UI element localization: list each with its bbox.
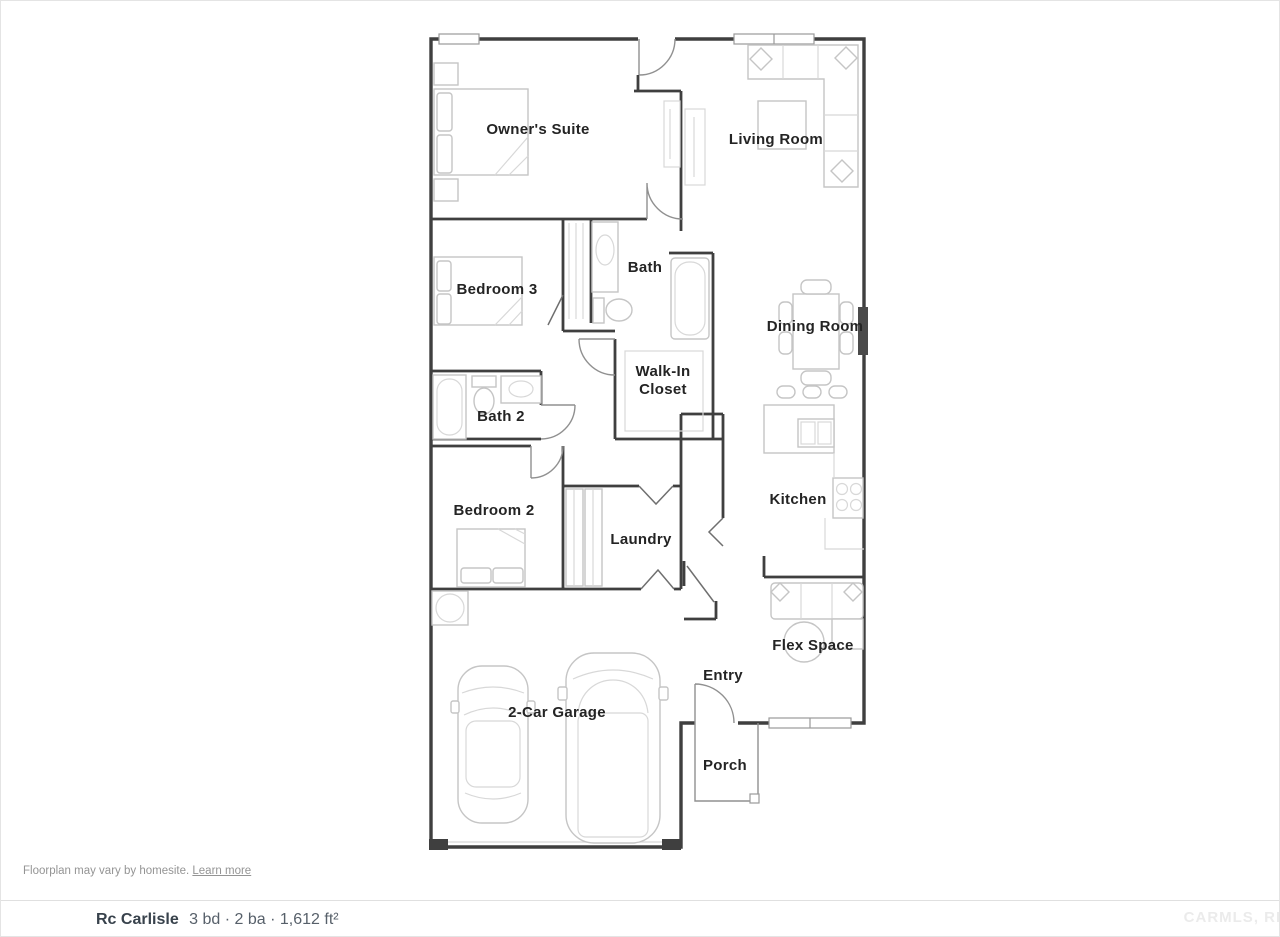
learn-more-link[interactable]: Learn more	[192, 865, 251, 877]
pillow-icon	[461, 568, 491, 583]
room-label-porch: Porch	[703, 757, 747, 774]
room-label-bath: Bath	[628, 259, 663, 276]
pillow-icon	[493, 568, 523, 583]
disclaimer-text: Floorplan may vary by homesite.	[23, 865, 189, 877]
water-heater-icon	[432, 591, 468, 625]
garage-entry-door-mark	[641, 570, 674, 589]
plan-summary: Rc Carlisle 3 bd · 2 ba · 1,612 ft²	[96, 901, 339, 937]
room-label-garage: 2-Car Garage	[508, 704, 606, 721]
toilet-icon	[593, 298, 604, 323]
closet-door-mark	[548, 295, 563, 325]
room-label-entry: Entry	[703, 667, 743, 684]
laundry-fixtures	[566, 489, 602, 586]
room-label-bedroom-3: Bedroom 3	[456, 281, 537, 298]
entry-closet-door-mark	[687, 566, 714, 602]
bedroom-3-furniture	[434, 223, 583, 325]
room-label-living-room: Living Room	[729, 131, 823, 148]
door-arc	[541, 405, 575, 439]
console-icon	[664, 101, 680, 167]
chair-icon	[801, 280, 831, 294]
plan-summary-bar: Rc Carlisle 3 bd · 2 ba · 1,612 ft²	[1, 901, 1280, 937]
room-label-closet: Closet	[639, 381, 687, 398]
console-icon	[685, 109, 705, 185]
front-door-arc	[695, 684, 734, 723]
vanity-sink-icon	[592, 222, 618, 292]
room-label-kitchen: Kitchen	[769, 491, 826, 508]
hall-door-mark	[709, 518, 723, 546]
nightstand-icon	[434, 63, 458, 85]
floorplan-page: Owner's Suite Living Room Bath Bedroom 3…	[0, 0, 1280, 937]
disclaimer: Floorplan may vary by homesite. Learn mo…	[23, 865, 251, 877]
plan-name: Rc Carlisle	[96, 911, 179, 928]
bar-stool-icon	[777, 386, 795, 398]
laundry-door-mark	[639, 486, 673, 504]
bedroom-2-furniture	[457, 529, 525, 587]
floorplan-image: Owner's Suite Living Room Bath Bedroom 3…	[1, 1, 1280, 861]
vanity-sink-icon	[501, 376, 541, 403]
door-arc	[647, 183, 683, 219]
kitchen-fixtures	[764, 386, 864, 549]
floorplan-svg: Owner's Suite Living Room Bath Bedroom 3…	[1, 1, 1280, 937]
porch-post	[750, 794, 759, 803]
bath-fixtures	[592, 222, 709, 339]
pillow-icon	[437, 261, 451, 291]
room-label-flex-space: Flex Space	[772, 637, 853, 654]
toilet-icon	[472, 376, 496, 387]
car-icon	[451, 666, 535, 823]
room-label-bedroom-2: Bedroom 2	[453, 502, 534, 519]
bar-stool-icon	[829, 386, 847, 398]
chair-icon	[801, 371, 831, 385]
bath-2-fixtures	[433, 375, 541, 439]
pillow-icon	[437, 93, 452, 131]
chair-icon	[779, 332, 792, 354]
closet-shelving-icon	[569, 223, 583, 319]
mls-watermark: CARMLS, RE	[1184, 909, 1280, 926]
door-arc	[639, 39, 675, 75]
room-label-dining-room: Dining Room	[767, 318, 864, 335]
door-arc	[531, 446, 563, 478]
pillow-icon	[437, 294, 451, 324]
door-arc	[579, 339, 615, 375]
room-label-bath-2: Bath 2	[477, 408, 525, 425]
room-label-laundry: Laundry	[610, 531, 672, 548]
suv-icon	[558, 653, 668, 843]
room-label-walk-in: Walk-In	[636, 363, 691, 380]
pillow-icon	[437, 135, 452, 173]
bar-stool-icon	[803, 386, 821, 398]
chair-icon	[840, 332, 853, 354]
room-label-owners-suite: Owner's Suite	[486, 121, 589, 138]
plan-details: 3 bd · 2 ba · 1,612 ft²	[189, 911, 338, 928]
living-room-furniture	[685, 45, 858, 187]
window	[439, 34, 479, 44]
bathtub-icon	[433, 375, 466, 439]
nightstand-icon	[434, 179, 458, 201]
sink-icon	[798, 419, 834, 447]
